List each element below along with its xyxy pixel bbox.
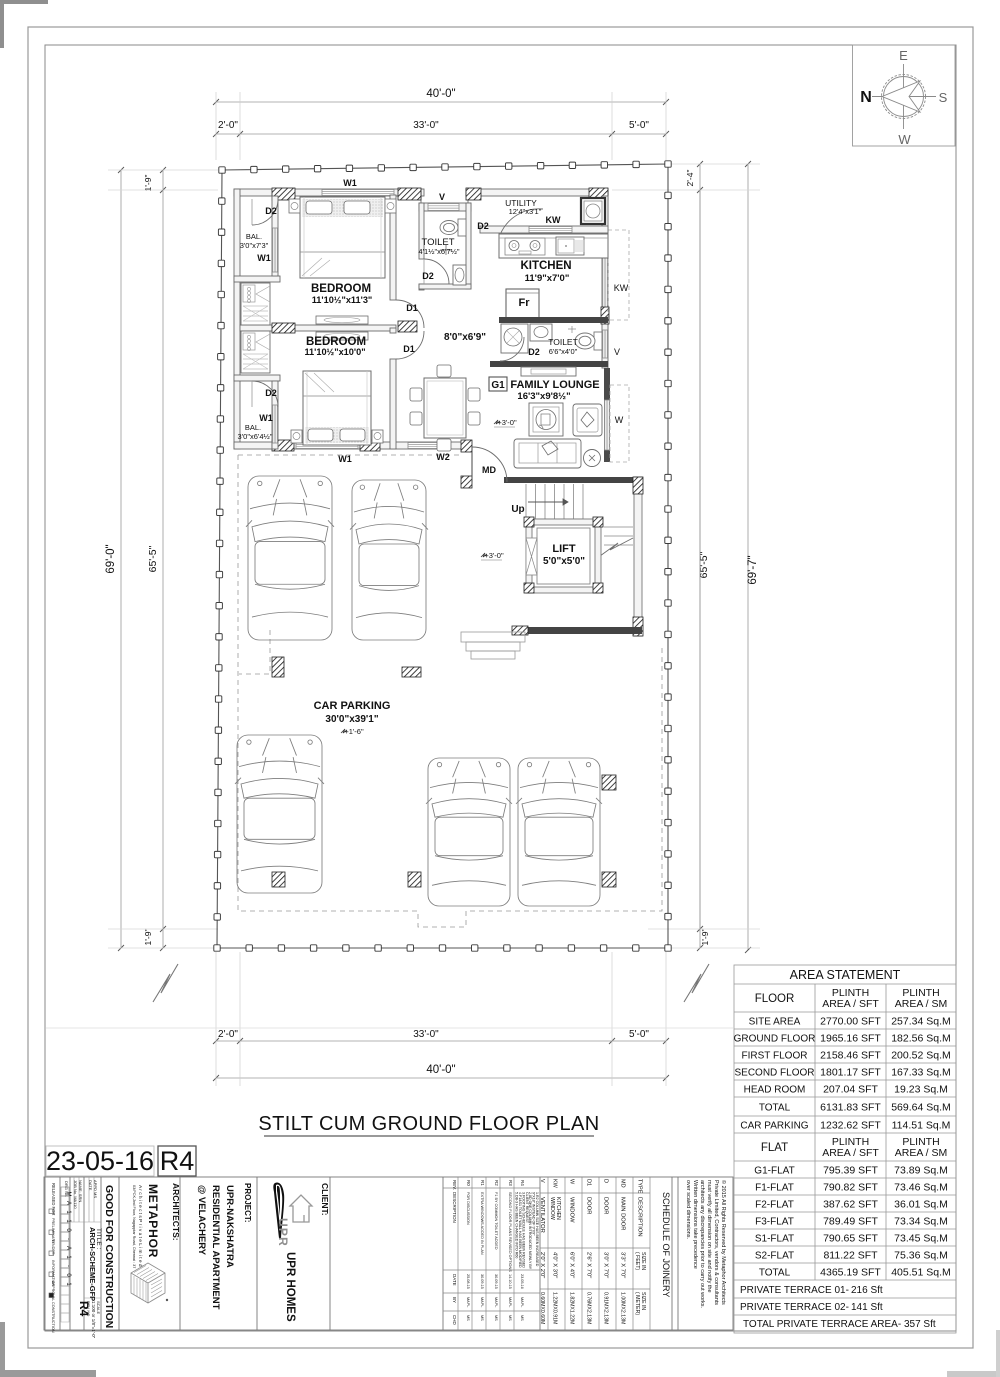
svg-text:182.56 Sq.M: 182.56 Sq.M (891, 1033, 951, 1045)
svg-text:8'0"x6'9": 8'0"x6'9" (444, 332, 486, 343)
svg-text:over scaled dimensions.: over scaled dimensions. (685, 1180, 691, 1239)
svg-text:141 Sft: 141 Sft (851, 1302, 883, 1313)
svg-text:1.00MX2.13M: 1.00MX2.13M (620, 1292, 626, 1324)
svg-text:W: W (898, 132, 911, 147)
svg-text:19.23 Sq.M: 19.23 Sq.M (894, 1084, 948, 1096)
svg-text:W: W (615, 415, 624, 425)
svg-text:F2-FLAT: F2-FLAT (755, 1200, 794, 1211)
svg-text:( METER): ( METER) (634, 1292, 640, 1315)
svg-text:MD: MD (482, 465, 496, 475)
svg-text:must verify all dimension on s: must verify all dimension on site and no… (706, 1180, 712, 1293)
svg-text:RESIDENTIAL APARTMENT: RESIDENTIAL APARTMENT (210, 1185, 221, 1310)
svg-text:AREA / SM: AREA / SM (895, 1147, 948, 1159)
svg-text:D2: D2 (265, 388, 277, 398)
svg-text:LIFT: LIFT (552, 543, 575, 555)
svg-text:MS: MS (480, 1315, 484, 1321)
svg-text:12'4"x3'1": 12'4"x3'1" (509, 207, 542, 216)
svg-text:S2-FLAT: S2-FLAT (755, 1251, 794, 1262)
svg-text:PRIVATE TERRACE 02-: PRIVATE TERRACE 02- (740, 1302, 849, 1313)
svg-text:405.51 Sq.M: 405.51 Sq.M (891, 1267, 951, 1279)
svg-text:2'-0": 2'-0" (218, 1029, 238, 1040)
svg-text:R1: R1 (480, 1180, 485, 1186)
svg-text:DOOR: DOOR (603, 1197, 609, 1214)
svg-text:KW: KW (614, 283, 629, 293)
svg-text:A: A (65, 1201, 71, 1205)
svg-text:SCHEDULE OF JOINERY: SCHEDULE OF JOINERY (661, 1192, 671, 1297)
svg-text:11'10½"x11'3": 11'10½"x11'3" (312, 295, 373, 305)
svg-text:( FEET): ( FEET) (634, 1252, 640, 1270)
svg-text:KITCHEN: KITCHEN (520, 260, 571, 272)
svg-text:BAL.: BAL. (246, 232, 262, 241)
svg-text:3'0"x7'3": 3'0"x7'3" (240, 241, 269, 250)
svg-text:Written dimensions take preced: Written dimensions take precedence (692, 1180, 698, 1269)
svg-text:UPR: UPR (276, 1218, 290, 1247)
svg-text:R4: R4 (160, 1146, 195, 1176)
svg-text:MAPL: MAPL (494, 1297, 498, 1307)
svg-text:W1: W1 (257, 253, 271, 263)
svg-text:-: - (65, 1238, 71, 1240)
svg-text:1'-9": 1'-9" (143, 929, 153, 946)
svg-text:WINDOW: WINDOW (549, 1197, 555, 1220)
svg-text:SECOND FLOOR PLANS REVISED OPT: SECOND FLOOR PLANS REVISED OPTIONS (508, 1192, 512, 1272)
svg-text:DESCRIPTION: DESCRIPTION (637, 1197, 643, 1237)
svg-text:23.05.16: 23.05.16 (520, 1274, 524, 1289)
svg-text:Fr: Fr (519, 297, 531, 309)
svg-text:14.10.15: 14.10.15 (508, 1274, 512, 1289)
svg-text:D2: D2 (422, 271, 434, 281)
svg-text:FLOOR: FLOOR (755, 993, 795, 1005)
svg-text:MS: MS (508, 1315, 512, 1321)
svg-text:TOILET: TOILET (548, 337, 578, 347)
svg-text:BAL.: BAL. (245, 423, 261, 432)
svg-text:6'0" X 4'0": 6'0" X 4'0" (569, 1252, 575, 1278)
svg-text:DATE: DATE (88, 1180, 93, 1191)
svg-text:A r c h i t e c t s P r i v: A r c h i t e c t s P r i v a t e L i m … (137, 1185, 143, 1267)
svg-text:TOTAL PRIVATE TERRACE AREA- 3: TOTAL PRIVATE TERRACE AREA- 357 Sft (743, 1319, 936, 1330)
svg-text:25.08.15: 25.08.15 (466, 1274, 470, 1289)
svg-text:2'0" X 2'0": 2'0" X 2'0" (539, 1252, 545, 1278)
svg-text:D2: D2 (265, 206, 277, 216)
svg-text:114.51 Sq.M: 114.51 Sq.M (892, 1120, 951, 1132)
svg-text:CAR PARKING: CAR PARKING (314, 700, 391, 712)
svg-text:257.34 Sq.M: 257.34 Sq.M (891, 1016, 951, 1028)
svg-text:D2: D2 (477, 221, 489, 231)
svg-text:FAMILY LOUNGE: FAMILY LOUNGE (510, 379, 599, 391)
svg-text:DESCRIPTION: DESCRIPTION (452, 1192, 457, 1223)
svg-text:790.65 SFT: 790.65 SFT (823, 1233, 878, 1245)
svg-text:W2: W2 (436, 452, 450, 462)
svg-text:4365.19 SFT: 4365.19 SFT (820, 1267, 881, 1279)
svg-text:4'0" X 3'0": 4'0" X 3'0" (552, 1252, 558, 1278)
svg-text:30.09.15: 30.09.15 (494, 1274, 498, 1289)
svg-text:0.76MX2.13M: 0.76MX2.13M (586, 1292, 592, 1324)
svg-text:APPROVAL: APPROVAL (51, 1281, 55, 1301)
svg-text:40'-0": 40'-0" (426, 88, 455, 100)
svg-text:R3: R3 (508, 1180, 513, 1186)
svg-text:23-05-16: 23-05-16 (46, 1146, 154, 1176)
svg-text:11'9"x7'0": 11'9"x7'0" (525, 273, 570, 284)
svg-text:387.62 SFT: 387.62 SFT (823, 1199, 878, 1211)
svg-text:© 2015 All Rights Reserved by: © 2015 All Rights Reserved by Metaphor A… (720, 1180, 727, 1305)
svg-text:W1: W1 (259, 413, 273, 423)
svg-text:MAPL: MAPL (520, 1297, 524, 1307)
svg-text:FOR DISCUSSION: FOR DISCUSSION (466, 1192, 470, 1225)
svg-text:CAR PARKING: CAR PARKING (740, 1121, 808, 1132)
svg-text:1.82MX1.22M: 1.82MX1.22M (569, 1292, 575, 1324)
svg-text:FLAT: FLAT (761, 1142, 788, 1154)
svg-text:GROUND FLOOR: GROUND FLOOR (734, 1034, 816, 1045)
svg-text:1801.17 SFT: 1801.17 SFT (820, 1067, 881, 1079)
svg-text:UPR HOMES: UPR HOMES (284, 1252, 296, 1322)
svg-text:2'-4": 2'-4" (685, 170, 695, 187)
svg-text:ARCH-SCHEME-GFP: ARCH-SCHEME-GFP (88, 1227, 97, 1301)
svg-text:2158.46 SFT: 2158.46 SFT (820, 1050, 881, 1062)
svg-text:69'-0": 69'-0" (105, 544, 117, 573)
svg-text:F3-FLAT: F3-FLAT (755, 1217, 794, 1228)
svg-text:16'3"x9'8½": 16'3"x9'8½" (517, 391, 570, 402)
svg-text:PROJECT:: PROJECT: (243, 1183, 252, 1223)
svg-text:-: - (65, 1265, 71, 1267)
svg-text:TYPE: TYPE (637, 1179, 643, 1194)
svg-text:2770.00 SFT: 2770.00 SFT (820, 1016, 881, 1028)
svg-text:65'-5": 65'-5" (147, 545, 159, 572)
svg-text:METAPHOR: METAPHOR (146, 1184, 160, 1258)
svg-text:73.89 Sq.M: 73.89 Sq.M (894, 1165, 948, 1177)
svg-text:MD: MD (620, 1179, 626, 1188)
svg-text:HEAD ROOM: HEAD ROOM (744, 1085, 806, 1096)
svg-text:3'0"x6'4½": 3'0"x6'4½" (238, 432, 273, 441)
svg-text:V: V (539, 1179, 545, 1183)
svg-text:STILT CUM GROUND FLOOR PLAN: STILT CUM GROUND FLOOR PLAN (258, 1113, 599, 1135)
svg-text:S1-FLAT: S1-FLAT (755, 1234, 794, 1245)
svg-text:5'-0": 5'-0" (629, 1029, 649, 1040)
svg-text:CONSTRUCTION: CONSTRUCTION (51, 1302, 55, 1333)
svg-text:69'-7": 69'-7" (747, 555, 759, 584)
svg-text:AREA / SM: AREA / SM (895, 998, 948, 1010)
svg-text:MS: MS (520, 1315, 524, 1321)
svg-text:200.52 Sq.M: 200.52 Sq.M (891, 1050, 951, 1062)
svg-text:D1: D1 (403, 344, 415, 354)
svg-text:REV.: REV. (452, 1180, 457, 1190)
svg-text:MAPL: MAPL (480, 1297, 484, 1307)
svg-text:4'1½"x6'7½": 4'1½"x6'7½" (418, 247, 459, 256)
svg-text:WINDOW: WINDOW (569, 1197, 575, 1223)
svg-text:W: W (569, 1179, 575, 1185)
svg-text:F1-FLAT: F1-FLAT (755, 1183, 794, 1194)
svg-text:MAIN DOOR: MAIN DOOR (620, 1197, 626, 1231)
svg-text:PRIVATE TERRACE 01-: PRIVATE TERRACE 01- (740, 1285, 849, 1296)
svg-text:CHD: CHD (452, 1315, 457, 1325)
svg-text:40'-0": 40'-0" (426, 1064, 455, 1076)
svg-text:11'10½"x10'0": 11'10½"x10'0" (304, 347, 365, 357)
svg-text:AREA / SFT: AREA / SFT (822, 1147, 879, 1159)
svg-text:+1'-6": +1'-6" (344, 727, 364, 736)
svg-text:TOTAL: TOTAL (759, 1103, 791, 1114)
svg-text:V: V (614, 347, 620, 357)
svg-text:KW: KW (552, 1179, 558, 1189)
svg-text:ARCHITECTS:: ARCHITECTS: (171, 1183, 181, 1241)
svg-text:BY: BY (452, 1297, 457, 1303)
svg-text:FIRST FLOOR: FIRST FLOOR (742, 1051, 808, 1062)
svg-text:architects any discrepancies p: architects any discrepancies prior to ca… (699, 1180, 705, 1309)
svg-text:W1: W1 (343, 178, 357, 188)
svg-text:Private Limited, Contractors,: Private Limited, Contractors, vendors & … (713, 1180, 719, 1305)
svg-text:D: D (603, 1179, 609, 1183)
svg-text:D1: D1 (406, 303, 418, 313)
svg-text:+3'-0": +3'-0" (497, 418, 517, 427)
svg-text:APPD MS: APPD MS (93, 1180, 98, 1198)
svg-text:NAME: SRN: NAME: SRN (78, 1180, 83, 1202)
svg-text:R4: R4 (520, 1180, 525, 1186)
svg-text:5'0"x5'0": 5'0"x5'0" (543, 556, 585, 567)
svg-text:30.09.15: 30.09.15 (480, 1274, 484, 1289)
svg-text:MAPL: MAPL (508, 1297, 512, 1307)
svg-text:1232.62 SFT: 1232.62 SFT (820, 1120, 881, 1132)
svg-text:207.04 SFT: 207.04 SFT (823, 1084, 878, 1096)
svg-text:V: V (439, 192, 445, 202)
svg-text:789.49 SFT: 789.49 SFT (823, 1216, 878, 1228)
svg-text:AREA / SFT: AREA / SFT (822, 998, 879, 1010)
svg-text:JOB No. MA110: JOB No. MA110 (73, 1180, 78, 1209)
svg-text:5'-0": 5'-0" (629, 120, 649, 131)
svg-text:+3'-0": +3'-0" (484, 551, 504, 560)
svg-text:BEDROOM: BEDROOM (311, 283, 371, 295)
svg-text:MS: MS (466, 1315, 470, 1321)
svg-text:6131.83 SFT: 6131.83 SFT (820, 1102, 881, 1114)
svg-text:R0: R0 (466, 1180, 471, 1186)
svg-text:75.36 Sq.M: 75.36 Sq.M (894, 1250, 948, 1262)
svg-text:33'-0": 33'-0" (413, 1029, 439, 1040)
svg-text:1965.16 SFT: 1965.16 SFT (820, 1033, 881, 1045)
svg-text:795.39 SFT: 795.39 SFT (823, 1165, 878, 1177)
svg-text:73.45 Sq.M: 73.45 Sq.M (894, 1233, 948, 1245)
svg-text:MS: MS (494, 1315, 498, 1321)
svg-text:D2: D2 (528, 347, 540, 357)
svg-text:SECOND FLOOR: SECOND FLOOR (734, 1068, 814, 1079)
svg-text:UPR-NAKSHATRA: UPR-NAKSHATRA (224, 1185, 235, 1268)
svg-text:R2: R2 (494, 1180, 499, 1186)
svg-text:2'-0": 2'-0" (218, 120, 238, 131)
svg-text:S: S (939, 90, 948, 105)
svg-text:G1-FLAT: G1-FLAT (754, 1166, 794, 1177)
svg-text:3'3" X 7'0": 3'3" X 7'0" (620, 1252, 626, 1278)
svg-text:1'-9": 1'-9" (700, 929, 710, 946)
svg-text:2'6" X 7'0": 2'6" X 7'0" (586, 1252, 592, 1278)
svg-text:N: N (860, 89, 872, 106)
svg-text:R4: R4 (77, 1301, 91, 1317)
svg-text:03/PCK,2nd Floor, Nagappiar Ro: 03/PCK,2nd Floor, Nagappiar Road, Chenna… (132, 1185, 136, 1268)
svg-text:167.33 Sq.M: 167.33 Sq.M (891, 1067, 951, 1079)
svg-text:SITE AREA: SITE AREA (749, 1017, 801, 1028)
svg-text:D1: D1 (586, 1179, 592, 1186)
svg-text:DATE: DATE (452, 1274, 457, 1286)
svg-text:CLIENT:: CLIENT: (320, 1183, 330, 1216)
svg-text:A: A (65, 1246, 71, 1250)
svg-text:MAPL: MAPL (466, 1297, 470, 1307)
svg-text:6'6"x4'0": 6'6"x4'0" (549, 347, 578, 356)
svg-text:@ VELACHERY: @ VELACHERY (196, 1185, 207, 1256)
svg-text:F1 BY COMMON TOILET ADDED: F1 BY COMMON TOILET ADDED (494, 1192, 498, 1250)
svg-text:73.46 Sq.M: 73.46 Sq.M (894, 1182, 948, 1194)
svg-text:GOOD FOR CONSTRUCTION: GOOD FOR CONSTRUCTION (103, 1185, 114, 1328)
svg-text:0.60MX0.60M: 0.60MX0.60M (539, 1292, 545, 1324)
svg-text:G1: G1 (491, 380, 505, 391)
svg-text:216 Sft: 216 Sft (851, 1285, 883, 1296)
svg-text:Up: Up (511, 504, 524, 515)
svg-text:790.82 SFT: 790.82 SFT (823, 1182, 878, 1194)
svg-text:1'-9": 1'-9" (143, 175, 153, 192)
svg-text:VENTILATOR: VENTILATOR (539, 1197, 545, 1233)
svg-text:EXTRA WINDOWS ADDED IN PLAN: EXTRA WINDOWS ADDED IN PLAN (480, 1192, 484, 1255)
svg-text:30'0"x39'1": 30'0"x39'1" (325, 714, 378, 725)
svg-text:811.22 SFT: 811.22 SFT (823, 1250, 878, 1262)
svg-text:TENDER: TENDER (51, 1239, 55, 1255)
svg-text:AREA STATEMENT: AREA STATEMENT (790, 968, 901, 982)
svg-text:73.34 Sq.M: 73.34 Sq.M (894, 1216, 948, 1228)
svg-text:0.91MX2.13M: 0.91MX2.13M (603, 1292, 609, 1324)
svg-text:DOOR: DOOR (586, 1197, 592, 1214)
svg-text:36.01 Sq.M: 36.01 Sq.M (894, 1199, 948, 1211)
svg-text:5.DB-3 HAS BEEN CHANGED INTO R: 5.DB-3 HAS BEEN CHANGED INTO R60 (515, 1192, 519, 1258)
svg-text:569.64 Sq.M: 569.64 Sq.M (891, 1102, 951, 1114)
svg-text:3'0" X 7'0": 3'0" X 7'0" (603, 1252, 609, 1278)
svg-text:33'-0": 33'-0" (413, 120, 439, 131)
svg-text:TOTAL: TOTAL (759, 1268, 791, 1279)
svg-text:E: E (899, 48, 908, 63)
svg-text:KW: KW (546, 215, 561, 225)
svg-text:W1: W1 (338, 454, 352, 464)
svg-text:1.22MX0.91M: 1.22MX0.91M (552, 1292, 558, 1324)
